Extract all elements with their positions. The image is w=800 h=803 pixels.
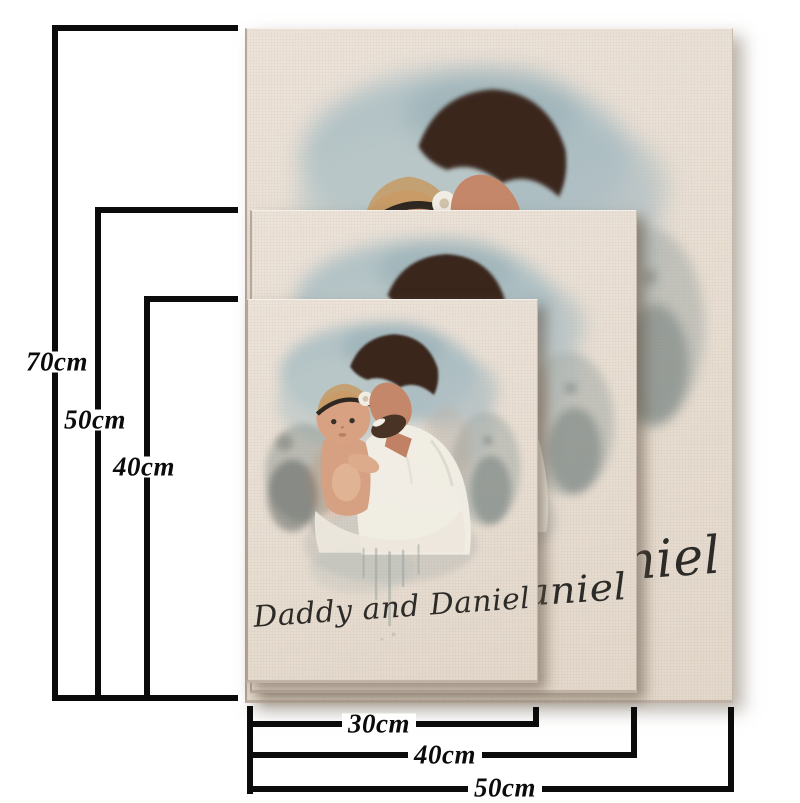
height-label-70cm: 70cm: [20, 352, 94, 373]
height-label-50cm: 50cm: [58, 410, 132, 431]
width-baseline-left: [247, 706, 253, 794]
canvas-size-chart: Daddy and Daniel 70cm 50cm 40cm 30cm 40c…: [0, 0, 800, 800]
width-label-30cm: 30cm: [342, 714, 416, 735]
canvas-artwork-small: [248, 300, 537, 680]
height-line-40cm: [144, 296, 150, 701]
canvas-print-30x40: [246, 299, 538, 683]
width-label-40cm: 40cm: [408, 745, 482, 766]
height-arm-40cm: [144, 296, 238, 302]
width-tick-30cm: [533, 707, 539, 727]
height-label-40cm: 40cm: [107, 457, 181, 478]
height-line-50cm: [95, 207, 101, 701]
width-tick-40cm: [631, 707, 637, 758]
width-tick-50cm: [728, 707, 734, 792]
height-baseline: [52, 695, 238, 701]
height-arm-70cm: [52, 25, 238, 31]
width-label-50cm: 50cm: [468, 778, 542, 799]
height-arm-50cm: [95, 207, 238, 213]
